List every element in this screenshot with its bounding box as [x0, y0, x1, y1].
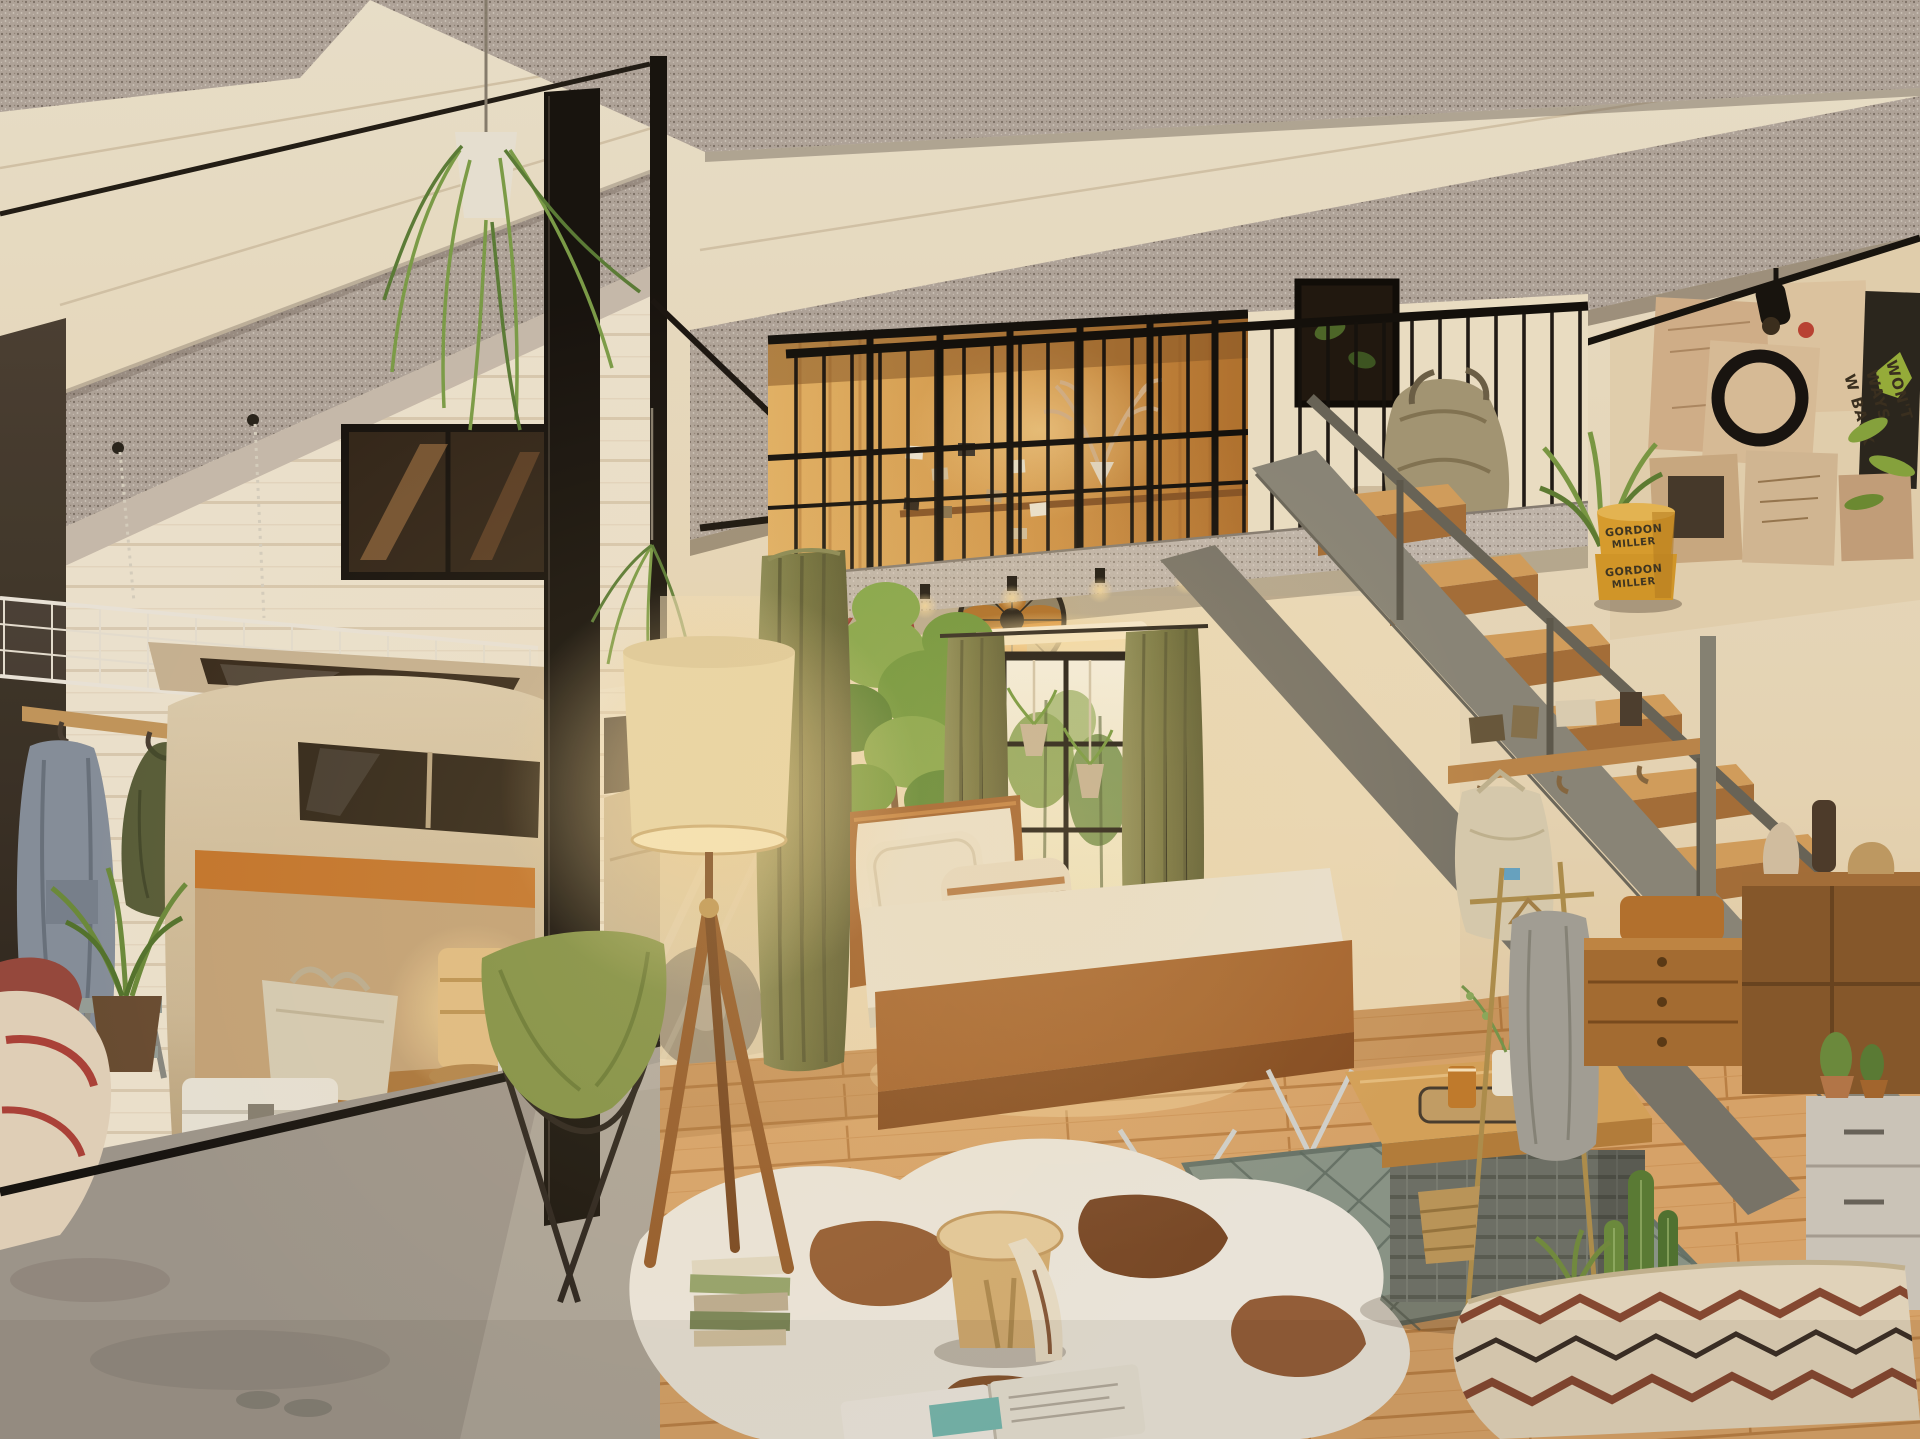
bag-label — [1504, 868, 1520, 880]
woven-basket — [1418, 1186, 1480, 1264]
book-stack — [690, 1256, 791, 1347]
poster-sketch — [1742, 450, 1838, 565]
ceiling-hook-1 — [112, 442, 124, 454]
wooden-chair-back — [1620, 896, 1724, 942]
dark-bottle — [1812, 800, 1836, 872]
wooden-stool — [934, 1212, 1066, 1368]
mezzanine-dark-window — [1298, 282, 1396, 404]
scene-loft-interior: WON'T WAYS W BACK — [0, 0, 1920, 1439]
clerestory-window — [345, 428, 553, 576]
kilim-floor-cushion — [1452, 1262, 1920, 1439]
poster-small — [1839, 473, 1914, 561]
ceiling-hook-2 — [247, 414, 259, 426]
gordon-miller-buckets: GORDON MILLER GORDON MILLER — [1594, 503, 1682, 613]
scene-canvas: WON'T WAYS W BACK — [0, 0, 1920, 1439]
lamp-shade — [623, 652, 795, 840]
amber-glass — [1448, 1066, 1476, 1108]
